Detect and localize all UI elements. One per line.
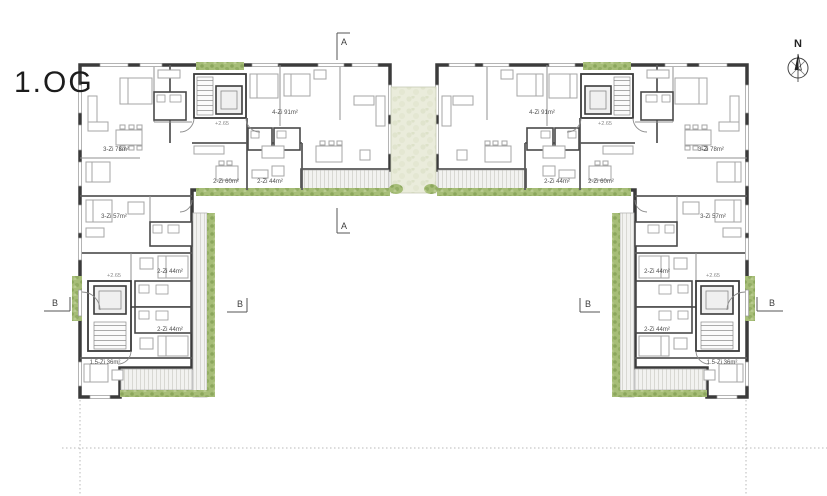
unit-label: 2-Zi 44m² bbox=[644, 269, 670, 275]
unit-label: 2-Zi 44m² bbox=[157, 327, 183, 333]
elevation-label: +2.65 bbox=[215, 121, 229, 127]
north-arrow-icon bbox=[788, 54, 808, 82]
unit-label: 3-Zi 57m² bbox=[700, 214, 726, 220]
unit-label: 2-Zi 44m² bbox=[544, 179, 570, 185]
unit-label: 1.5-Zi 36m² bbox=[90, 360, 121, 366]
unit-label: 2-Zi 44m² bbox=[644, 327, 670, 333]
elevation-label: +2.65 bbox=[598, 121, 612, 127]
page-title: 1.OG bbox=[14, 66, 94, 100]
unit-label: 1.5-Zi 36m² bbox=[707, 360, 738, 366]
section-marker-b-mid-west: B bbox=[237, 299, 243, 309]
unit-label: 2-Zi 60m² bbox=[588, 179, 614, 185]
east-building bbox=[435, 62, 755, 399]
unit-label: 4-Zi 91m² bbox=[529, 110, 555, 116]
section-marker-b-right: B bbox=[769, 298, 775, 308]
section-marker-b-left: B bbox=[52, 298, 58, 308]
floor-plan-drawing bbox=[0, 0, 827, 496]
unit-label: 2-Zi 44m² bbox=[157, 269, 183, 275]
elevation-label: +2.65 bbox=[107, 273, 121, 279]
unit-label: 2-Zi 44m² bbox=[257, 179, 283, 185]
property-line bbox=[62, 400, 827, 496]
unit-label: 2-Zi 60m² bbox=[213, 179, 239, 185]
unit-label: 4-Zi 91m² bbox=[272, 110, 298, 116]
section-marker-a-bottom: A bbox=[341, 221, 347, 231]
unit-label: 3-Zi 78m² bbox=[103, 147, 129, 153]
floor-plan-page: 1.OG N A A B B B B 3-Zi 78m² 4-Zi 91m² 2… bbox=[0, 0, 827, 496]
elevation-label: +2.65 bbox=[706, 273, 720, 279]
north-label: N bbox=[794, 38, 802, 50]
section-marker-b-mid-east: B bbox=[585, 299, 591, 309]
section-marker-a-top: A bbox=[341, 37, 347, 47]
unit-label: 3-Zi 57m² bbox=[101, 214, 127, 220]
courtyard-garden bbox=[389, 87, 438, 194]
unit-label: 3-Zi 78m² bbox=[698, 147, 724, 153]
